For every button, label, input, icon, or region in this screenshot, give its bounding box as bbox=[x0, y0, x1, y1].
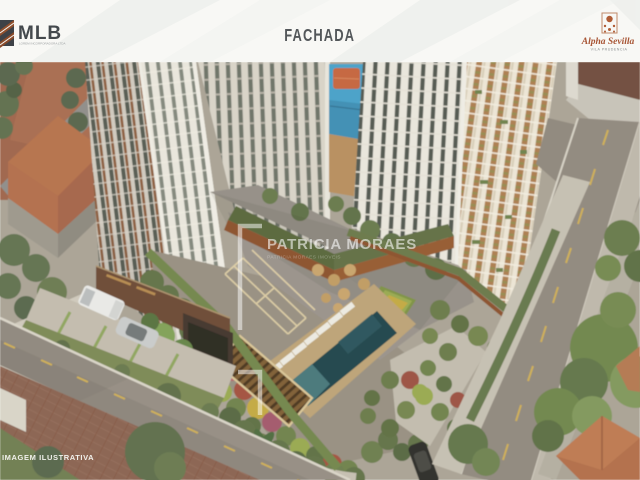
svg-text:PATRICIA MORAES IMOVEIS: PATRICIA MORAES IMOVEIS bbox=[267, 255, 341, 261]
svg-text:LOREM INCORPORADORA LTDA: LOREM INCORPORADORA LTDA bbox=[19, 42, 65, 46]
svg-text:VILA PRUDENCIA: VILA PRUDENCIA bbox=[591, 48, 628, 52]
svg-text:FACHADA: FACHADA bbox=[284, 26, 355, 46]
svg-text:Alpha Sevilla: Alpha Sevilla bbox=[581, 37, 635, 47]
svg-text:IMAGEM ILUSTRATIVA: IMAGEM ILUSTRATIVA bbox=[2, 453, 94, 462]
svg-text:PATRICIA MORAES: PATRICIA MORAES bbox=[267, 236, 417, 253]
